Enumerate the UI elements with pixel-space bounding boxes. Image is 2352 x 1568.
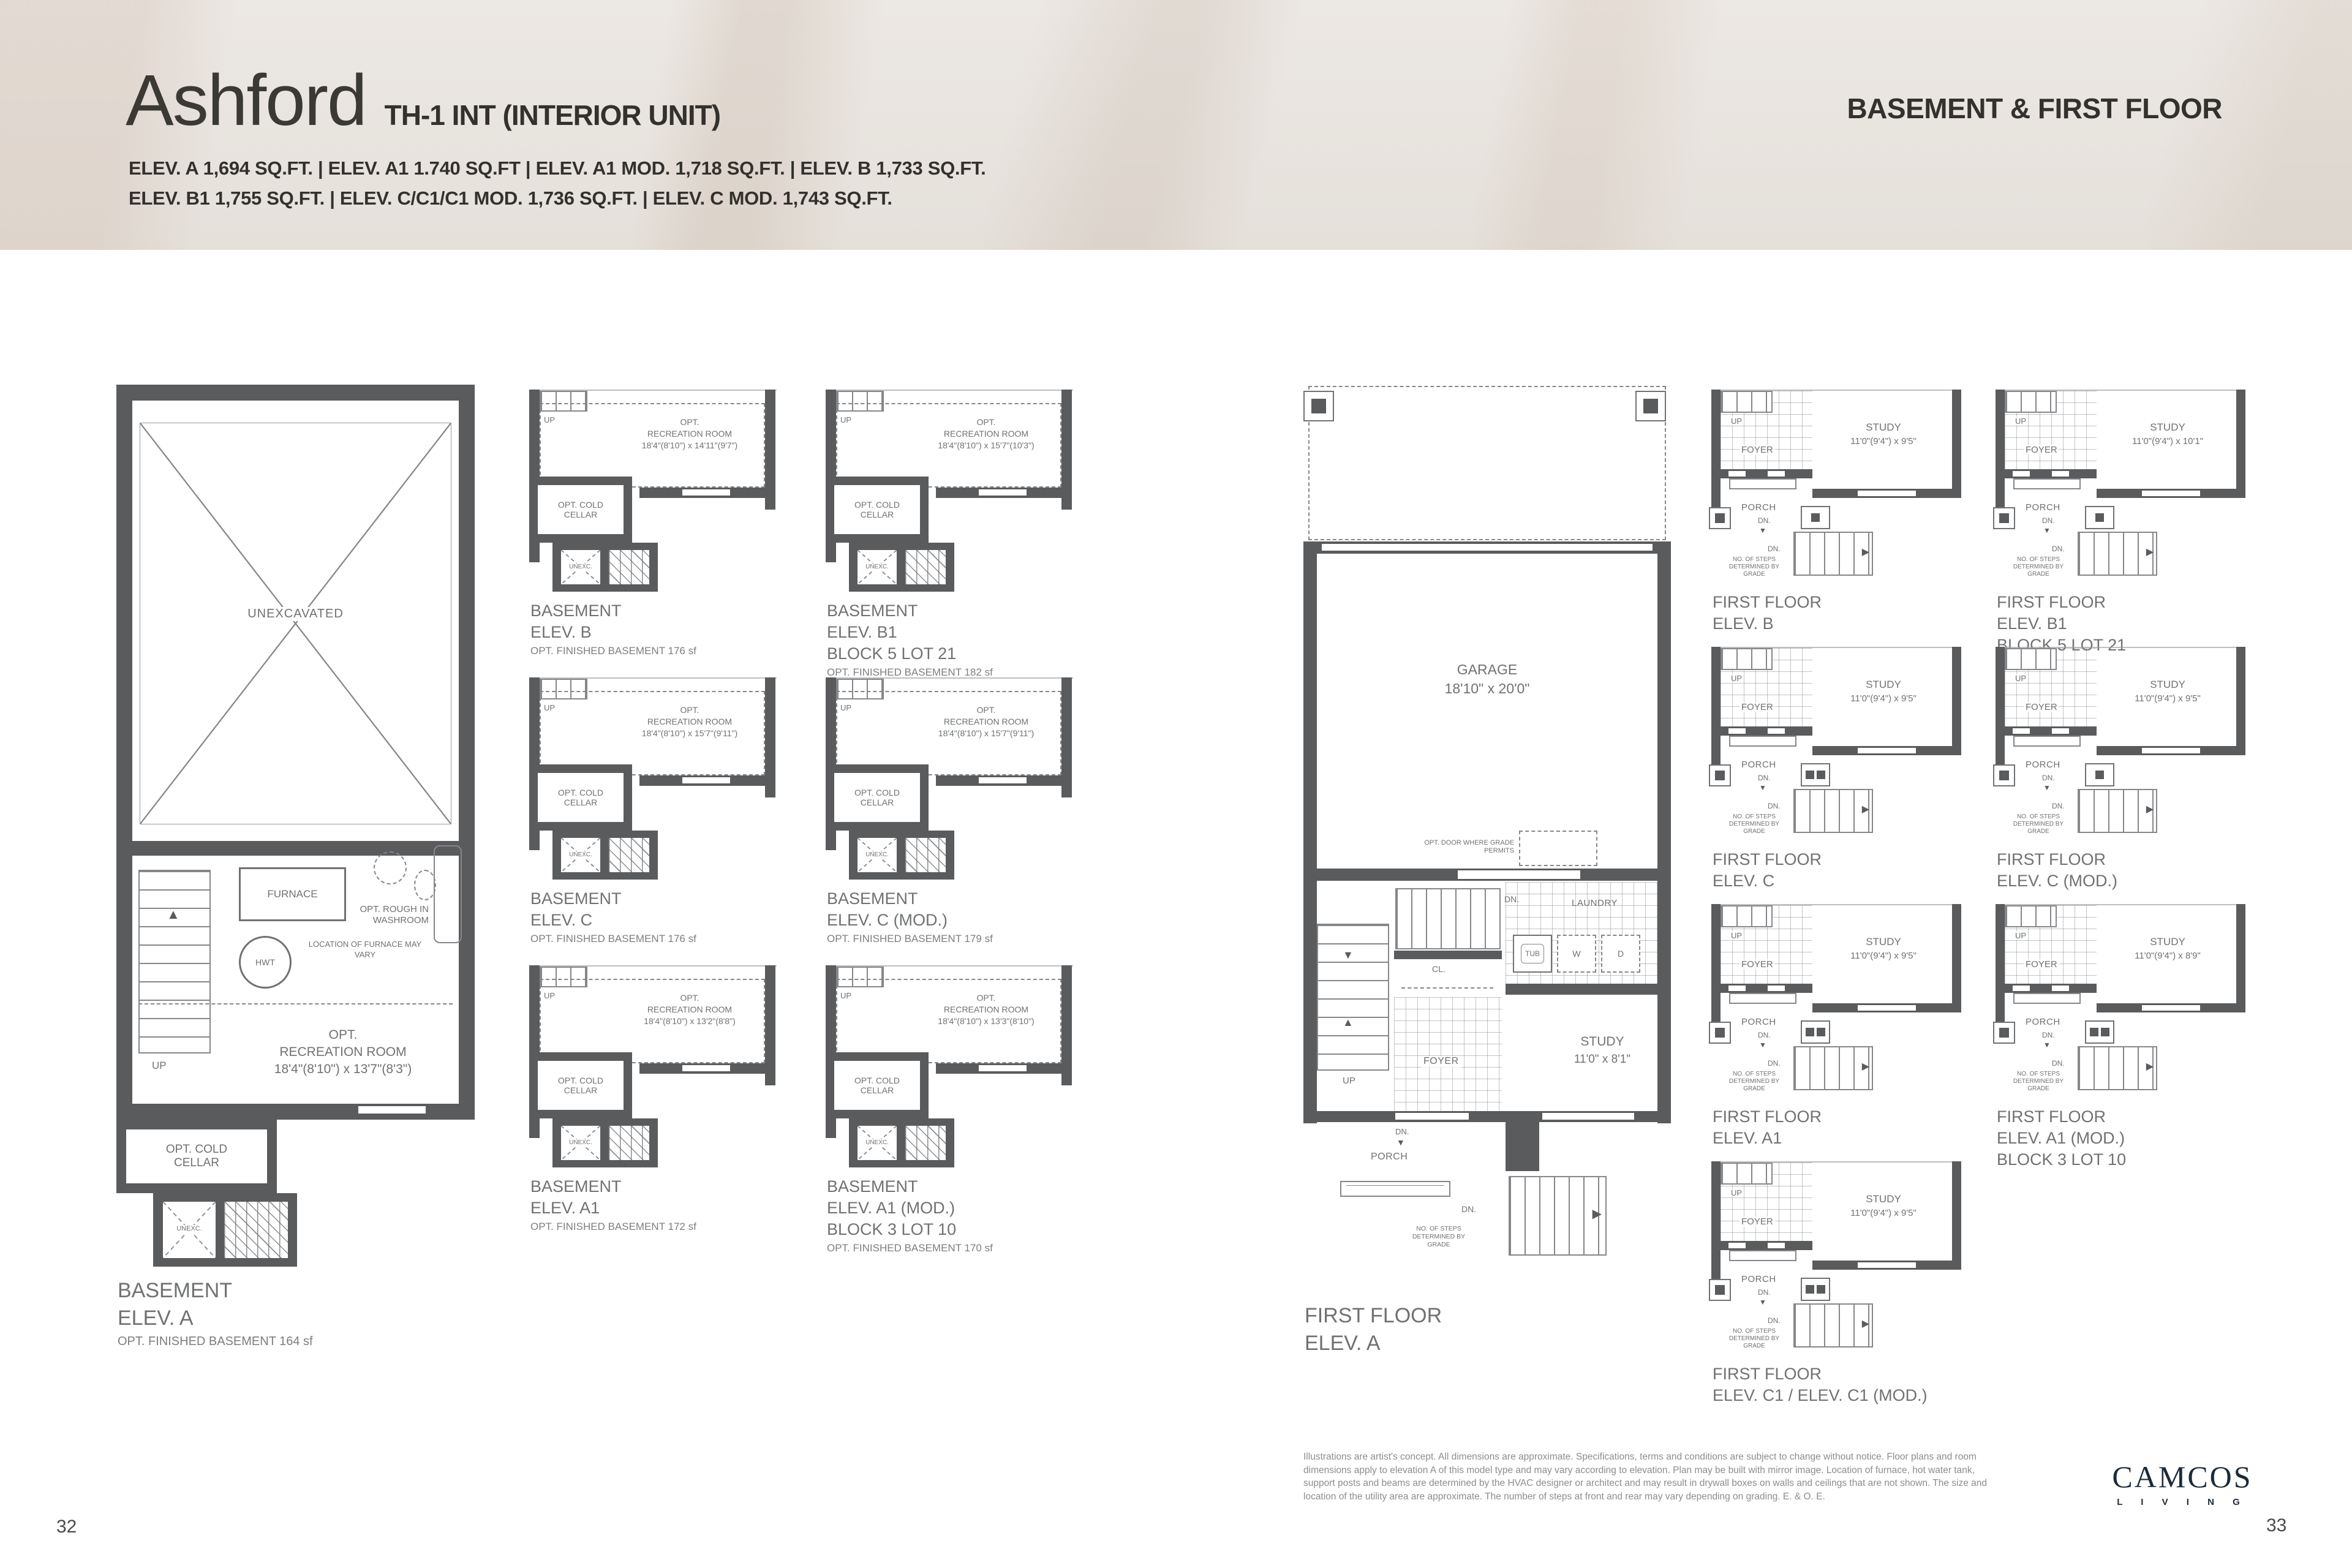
- study-dims: 11'0"(9'4") x 8'9": [2101, 949, 2234, 963]
- caption: FIRST FLOOR ELEV. C1 / ELEV. C1 (MOD.): [1713, 1363, 1928, 1406]
- wall: [1996, 647, 2005, 780]
- cold-cellar-label: OPT. COLD CELLAR: [850, 1076, 905, 1095]
- caption: BASEMENT ELEV. C OPT. FINISHED BASEMENT …: [530, 888, 696, 946]
- stair-arrow-icon: ▶: [2146, 548, 2154, 557]
- caption-elev: ELEV. C: [1713, 870, 1822, 892]
- post-core: [1715, 513, 1725, 523]
- cold-cellar-room: OPT. COLD CELLAR: [538, 773, 624, 822]
- post-core: [1999, 513, 2009, 523]
- rec-room-dims: 18'4"(8'10") x 15'7"(9'11"): [914, 728, 1058, 739]
- caption: FIRST FLOOR ELEV. A1: [1713, 1106, 1822, 1149]
- caption-floor: FIRST FLOOR: [1713, 849, 1822, 870]
- unexc-label: UNEXC.: [567, 851, 594, 859]
- window: [2052, 986, 2069, 991]
- caption-block: BLOCK 5 LOT 21: [827, 643, 993, 665]
- study-label: STUDY 11'0"(9'4") x 10'1": [2101, 420, 2234, 448]
- stairs-down: [1395, 888, 1501, 949]
- caption-elev: ELEV. C (MOD.): [1997, 870, 2117, 892]
- wall: [2236, 904, 2245, 1003]
- down-arrow-icon: ▼: [1759, 1298, 1766, 1306]
- wall: [1711, 904, 1721, 1038]
- foyer-label: FOYER: [2024, 445, 2059, 455]
- stair-hatch-cell: [609, 1126, 649, 1160]
- post-core: [1999, 1028, 2009, 1038]
- rec-room-name: RECREATION ROOM: [914, 1004, 1058, 1016]
- caption-floor: FIRST FLOOR: [1997, 592, 2126, 613]
- stairs-up: ▼ ▲: [1317, 924, 1389, 1071]
- porch-post: [1993, 507, 2015, 529]
- dn-label: DN.: [1758, 1289, 1771, 1297]
- window: [1858, 1262, 1916, 1268]
- post-core: [1811, 513, 1820, 522]
- study-label: STUDY 11'0"(9'4") x 9'5": [1817, 935, 1950, 963]
- toilet-fixture: [414, 870, 436, 900]
- study-label: STUDY 11'0" x 8'1": [1541, 1033, 1664, 1068]
- cold-cellar-room: OPT. COLD CELLAR: [834, 485, 920, 534]
- window: [1542, 1113, 1634, 1120]
- steps-note: NO. OF STEPS DETERMINED BY GRADE: [2005, 1071, 2071, 1093]
- post-core: [1715, 771, 1725, 780]
- rec-room-label: OPT. RECREATION ROOM 18'4"(8'10") x 13'7…: [233, 1027, 453, 1078]
- study-name: STUDY: [1817, 935, 1950, 949]
- up-label: UP: [2014, 931, 2027, 940]
- window: [1858, 748, 1916, 753]
- page-number-right: 33: [2266, 1515, 2286, 1536]
- sink-fixture: [374, 851, 407, 884]
- unexc-cell: UNEXC.: [561, 1126, 600, 1160]
- dn-label: DN.: [1768, 1060, 1781, 1068]
- basement-a-caption: BASEMENT ELEV. A OPT. FINISHED BASEMENT …: [118, 1277, 313, 1351]
- dn-label: DN.: [2052, 1060, 2065, 1068]
- window: [1768, 1243, 1785, 1248]
- post-core: [2101, 1028, 2109, 1036]
- washer-box: W: [1557, 935, 1596, 973]
- caption-sf: OPT. FINISHED BASEMENT 176 sf: [530, 643, 696, 658]
- door-opening: [1458, 870, 1580, 879]
- model-code: TH-1 INT (INTERIOR UNIT): [385, 99, 720, 132]
- window: [1858, 491, 1916, 496]
- porch-post: [1709, 1279, 1731, 1301]
- stair-arrow-icon: ▶: [2146, 1062, 2154, 1072]
- porch-steps: [2013, 736, 2081, 747]
- dn-label: DN.: [1768, 545, 1781, 554]
- hwt-label: HWT: [255, 957, 275, 967]
- stairs: [1721, 648, 1773, 670]
- caption-floor: BASEMENT: [827, 600, 993, 622]
- window: [2052, 728, 2069, 734]
- stair-arrow-icon: ▲: [1343, 1017, 1354, 1028]
- wall: [1996, 726, 2097, 736]
- foyer-floor: [1394, 997, 1502, 1111]
- rec-room-label: OPT. RECREATION ROOM 18'4"(8'10") x 13'3…: [914, 992, 1058, 1027]
- caption-elev: ELEV. B1: [1997, 613, 2126, 635]
- rec-room-name: RECREATION ROOM: [617, 716, 762, 728]
- rec-room-dims: 18'4"(8'10") x 15'7"(9'11"): [617, 728, 762, 739]
- wall: [1711, 984, 1812, 993]
- unexcavated-area: UNEXCAVATED: [140, 423, 451, 824]
- caption-elev: ELEV. A: [1305, 1330, 1442, 1357]
- stair-arrow-icon: ▼: [1343, 949, 1354, 960]
- cold-cellar-label: OPT. COLD CELLAR: [553, 788, 608, 807]
- rec-room-label: OPT. RECREATION ROOM 18'4"(8'10") x 15'7…: [617, 704, 762, 739]
- study-name: STUDY: [1817, 1192, 1950, 1206]
- cold-cellar-label: OPT. COLD CELLAR: [850, 788, 905, 807]
- porch-label: PORCH: [2026, 1017, 2060, 1027]
- porch-post: [2085, 763, 2114, 786]
- opt-label: OPT.: [914, 992, 1058, 1004]
- stair-hatch-cell: [905, 838, 946, 872]
- steps-note: NO. OF STEPS DETERMINED BY GRADE: [1721, 813, 1787, 835]
- first-floor-plan-elev-a: GARAGE 18'10" x 20'0" OPT. DOOR WHERE GR…: [1303, 385, 1671, 1285]
- caption-floor: FIRST FLOOR: [1997, 849, 2117, 870]
- rec-room-name: RECREATION ROOM: [233, 1044, 453, 1061]
- window: [2013, 728, 2030, 734]
- caption: FIRST FLOOR ELEV. B: [1713, 592, 1822, 635]
- porch-post: [2085, 1020, 2114, 1044]
- stairs: [2005, 391, 2057, 413]
- caption-floor: FIRST FLOOR: [1713, 592, 1822, 613]
- wall: [132, 841, 459, 856]
- study-dims: 11'0"(9'4") x 10'1": [2101, 434, 2234, 448]
- laundry-label: LAUNDRY: [1572, 898, 1618, 908]
- caption-floor: BASEMENT: [530, 600, 696, 622]
- rec-room-dims: 18'4"(8'10") x 13'3"(8'10"): [914, 1016, 1058, 1027]
- rec-room-label: OPT. RECREATION ROOM 18'4"(8'10") x 14'1…: [617, 417, 762, 451]
- wall: [1506, 984, 1657, 995]
- porch-post: [1801, 506, 1830, 529]
- wall: [2236, 390, 2245, 489]
- cold-cellar-label: OPT. COLD CELLAR: [850, 500, 905, 519]
- exterior-stairs: ▶: [2078, 1046, 2157, 1090]
- wall: [1952, 1161, 1961, 1261]
- opt-label: OPT.: [617, 992, 762, 1004]
- unexc-label: UNEXC.: [864, 1139, 891, 1147]
- window: [979, 489, 1027, 496]
- caption: FIRST FLOOR ELEV. A1 (MOD.) BLOCK 3 LOT …: [1997, 1106, 2126, 1170]
- post-core: [1643, 399, 1658, 413]
- study-dims: 11'0"(9'4") x 9'5": [1817, 1206, 1950, 1220]
- porch-post: [1993, 764, 2015, 786]
- caption-floor: FIRST FLOOR: [1713, 1363, 1928, 1385]
- stairs: [2005, 905, 2057, 927]
- window: [1768, 728, 1785, 734]
- window: [2052, 471, 2069, 477]
- dn-label: DN.: [1758, 517, 1771, 526]
- wall: [1711, 647, 1721, 780]
- study-label: STUDY 11'0"(9'4") x 8'9": [2101, 935, 2234, 963]
- camcos-logo: CAMCOS L I V I N G: [2081, 1459, 2283, 1507]
- opt-label: OPT.: [233, 1027, 453, 1044]
- stair-hatch-cell: [609, 550, 649, 584]
- opt-door-boundary: [1519, 831, 1597, 866]
- tub-label: TUB: [1521, 944, 1544, 963]
- study-name: STUDY: [1817, 677, 1950, 692]
- steps-note: NO. OF STEPS DETERMINED BY GRADE: [2005, 813, 2071, 835]
- post-core: [2090, 1028, 2098, 1036]
- wall: [1506, 1122, 1539, 1171]
- wall: [1996, 904, 2005, 1038]
- caption-sf: OPT. FINISHED BASEMENT 172 sf: [530, 1219, 696, 1234]
- up-label: UP: [1730, 1188, 1743, 1197]
- window: [2013, 986, 2030, 991]
- window: [1728, 1243, 1746, 1248]
- brochure-page: Ashford TH-1 INT (INTERIOR UNIT) BASEMEN…: [0, 0, 2352, 1568]
- unexc-cell: UNEXC.: [858, 1126, 897, 1160]
- caption-floor: BASEMENT: [827, 888, 993, 910]
- up-label: UP: [2014, 417, 2027, 426]
- rec-room-dims: 18'4"(8'10") x 14'11"(9'7"): [617, 440, 762, 451]
- window: [2142, 491, 2200, 496]
- unexc-label: UNEXC.: [567, 563, 594, 571]
- step-line: [1346, 1185, 1444, 1186]
- garage-label: GARAGE 18'10" x 20'0": [1395, 660, 1579, 698]
- porch-label: PORCH: [1741, 1017, 1776, 1027]
- dn-label: DN.: [2042, 1031, 2055, 1040]
- porch-post: [1709, 1022, 1731, 1044]
- exterior-stairs: ▶: [2078, 532, 2157, 576]
- porch-post: [1993, 1022, 2015, 1044]
- wall: [1952, 647, 1961, 746]
- porch-steps: [1340, 1181, 1450, 1197]
- foyer-label: FOYER: [1421, 1056, 1461, 1068]
- study-name: STUDY: [2101, 420, 2234, 434]
- caption-elev: ELEV. C (MOD.): [827, 910, 993, 931]
- basement-plan-elev-a: UNEXCAVATED ▲ UP FURNACE HWT LOCATION OF…: [116, 385, 475, 1279]
- stair-arrow-icon: ▶: [1862, 1319, 1869, 1329]
- sqft-specs: ELEV. A 1,694 SQ.FT. | ELEV. A1 1.740 SQ…: [129, 153, 986, 213]
- closet-dash: [1401, 987, 1493, 989]
- study-name: STUDY: [2101, 677, 2234, 692]
- porch-steps: [2013, 478, 2081, 489]
- stairs: [1721, 905, 1773, 927]
- caption: BASEMENT ELEV. A1 (MOD.) BLOCK 3 LOT 10 …: [827, 1176, 993, 1256]
- up-label: UP: [1730, 417, 1743, 426]
- post-core: [1806, 1028, 1814, 1036]
- wall: [1711, 726, 1812, 736]
- dn-label: DN.: [2042, 774, 2055, 783]
- caption-floor: FIRST FLOOR: [1305, 1302, 1442, 1330]
- unexc-cell: UNEXC.: [858, 550, 897, 584]
- wall: [1996, 390, 2005, 523]
- porch-label: PORCH: [1371, 1151, 1408, 1163]
- porch-post: [1709, 507, 1731, 529]
- up-label: UP: [2014, 674, 2027, 683]
- down-arrow-icon: ▼: [1759, 784, 1766, 791]
- opt-label: OPT.: [617, 417, 762, 428]
- exterior-stairs: ▶: [1793, 532, 1873, 576]
- garage-dims: 18'10" x 20'0": [1395, 679, 1579, 698]
- post-core: [1715, 1028, 1725, 1038]
- stair-hatch-cell: [905, 550, 946, 584]
- washroom-note: OPT. ROUGH IN WASHROOM: [330, 904, 429, 926]
- post-core: [1817, 771, 1825, 779]
- window: [1858, 1005, 1916, 1011]
- caption-floor: BASEMENT: [118, 1277, 313, 1305]
- driveway-boundary: [1308, 386, 1666, 540]
- up-label: UP: [1730, 931, 1743, 940]
- exterior-stairs: ▶: [1793, 789, 1873, 833]
- caption-elev: ELEV. C: [530, 910, 696, 931]
- post-core: [1715, 1285, 1725, 1295]
- stair-hatch-cell: [224, 1202, 288, 1258]
- stair-arrow-icon: ▲: [167, 908, 180, 921]
- title-row: Ashford TH-1 INT (INTERIOR UNIT): [126, 59, 720, 142]
- dn-label: DN.: [2052, 802, 2065, 811]
- caption-elev: ELEV. A1: [530, 1197, 696, 1219]
- porch-label: PORCH: [1741, 1274, 1776, 1284]
- porch-post: [1635, 391, 1666, 421]
- porch-post: [1303, 391, 1334, 421]
- porch-steps: [2013, 993, 2081, 1004]
- closet-label: CL.: [1432, 964, 1445, 974]
- caption-floor: BASEMENT: [530, 1176, 696, 1197]
- washer-label: W: [1572, 949, 1580, 959]
- foyer-label: FOYER: [1740, 1216, 1775, 1227]
- window: [1728, 986, 1746, 991]
- caption-sf: OPT. FINISHED BASEMENT 179 sf: [827, 931, 993, 946]
- porch-label: PORCH: [1741, 759, 1776, 770]
- dn-label: DN.: [1758, 1031, 1771, 1040]
- down-arrow-icon: ▼: [1759, 1041, 1766, 1049]
- furnace-label: FURNACE: [267, 888, 317, 900]
- caption: BASEMENT ELEV. B1 BLOCK 5 LOT 21 OPT. FI…: [827, 600, 993, 680]
- study-dims: 11'0" x 8'1": [1541, 1050, 1664, 1068]
- wall: [1952, 390, 1961, 489]
- window: [682, 1065, 730, 1071]
- unexc-label: UNEXC.: [864, 851, 891, 859]
- door-opening: [1395, 1113, 1469, 1120]
- unexc-cell: UNEXC.: [858, 838, 897, 872]
- cold-cellar-room: OPT. COLD CELLAR: [538, 1061, 624, 1110]
- down-arrow-icon: ▼: [2043, 1041, 2051, 1049]
- post-core: [1817, 1285, 1825, 1294]
- cold-cellar-room: OPT. COLD CELLAR: [834, 773, 920, 822]
- rec-room-dims: 18'4"(8'10") x 13'2"(8'8"): [617, 1016, 762, 1027]
- foyer-label: FOYER: [2024, 959, 2059, 970]
- caption-floor: BASEMENT: [827, 1176, 993, 1197]
- stair-arrow-icon: ▶: [1593, 1208, 1602, 1220]
- down-arrow-icon: ▼: [1759, 527, 1766, 534]
- opt-door-note: OPT. DOOR WHERE GRADE PERMITS: [1417, 839, 1514, 855]
- first-floor-a-caption: FIRST FLOOR ELEV. A: [1305, 1302, 1442, 1357]
- cold-cellar-room: OPT. COLD CELLAR: [538, 485, 624, 534]
- dn-label: DN.: [1768, 1317, 1781, 1325]
- unexc-cell: UNEXC.: [561, 550, 600, 584]
- post-core: [1311, 399, 1326, 413]
- caption-sf: OPT. FINISHED BASEMENT 164 sf: [118, 1332, 313, 1351]
- rec-room-name: RECREATION ROOM: [617, 428, 762, 440]
- rec-room-label: OPT. RECREATION ROOM 18'4"(8'10") x 13'2…: [617, 992, 762, 1027]
- porch-post: [2085, 506, 2114, 529]
- rec-room-name: RECREATION ROOM: [914, 428, 1058, 440]
- study-label: STUDY 11'0"(9'4") x 9'5": [1817, 677, 1950, 706]
- caption-elev: ELEV. C1 / ELEV. C1 (MOD.): [1713, 1385, 1928, 1406]
- caption-elev: ELEV. B: [1713, 613, 1822, 635]
- opt-label: OPT.: [617, 704, 762, 716]
- caption-elev: ELEV. B1: [827, 622, 993, 643]
- down-arrow-icon: ▼: [1396, 1138, 1405, 1147]
- porch-post: [1801, 763, 1830, 786]
- wall: [1996, 984, 2097, 993]
- study-label: STUDY 11'0"(9'4") x 9'5": [1817, 1192, 1950, 1220]
- caption-elev: ELEV. B: [530, 622, 696, 643]
- stair-arrow-icon: ▶: [2146, 805, 2154, 815]
- wall: [1394, 951, 1502, 959]
- sqft-specs-line2: ELEV. B1 1,755 SQ.FT. | ELEV. C/C1/C1 MO…: [129, 183, 986, 213]
- steps-note: NO. OF STEPS DETERMINED BY GRADE: [1403, 1225, 1475, 1249]
- window: [979, 1065, 1027, 1071]
- foyer-label: FOYER: [1740, 702, 1775, 712]
- unexc-cell: UNEXC.: [163, 1202, 216, 1258]
- page-number-left: 32: [56, 1517, 77, 1537]
- foyer-label: FOYER: [1740, 445, 1775, 455]
- stairs: [1721, 1163, 1773, 1185]
- post-core: [1999, 771, 2009, 780]
- exterior-stairs: ▶: [2078, 789, 2157, 833]
- window: [1728, 728, 1746, 734]
- stair-arrow-icon: ▶: [1862, 805, 1869, 815]
- porch-steps: [1729, 478, 1796, 489]
- window: [1728, 471, 1746, 477]
- porch-post: [1801, 1020, 1830, 1044]
- wall: [1303, 541, 1317, 1123]
- study-dims: 11'0"(9'4") x 9'5": [1817, 949, 1950, 963]
- dryer-box: D: [1601, 935, 1640, 973]
- unexc-label: UNEXC.: [172, 1225, 206, 1233]
- wall: [1711, 469, 1812, 478]
- disclaimer-text: Illustrations are artist's concept. All …: [1303, 1450, 1992, 1503]
- dn-label: DN.: [2042, 517, 2055, 526]
- porch-post: [1709, 764, 1731, 786]
- dn-label: DN.: [1395, 1127, 1409, 1136]
- up-label: UP: [1343, 1076, 1355, 1086]
- window: [358, 1106, 426, 1114]
- porch-post: [1801, 1278, 1830, 1301]
- dn-label: DN.: [1758, 774, 1771, 783]
- caption-block: BLOCK 3 LOT 10: [1997, 1149, 2126, 1170]
- steps-note: NO. OF STEPS DETERMINED BY GRADE: [1721, 556, 1787, 578]
- porch-label: PORCH: [1741, 502, 1776, 513]
- exterior-stairs: ▶: [1793, 1046, 1873, 1090]
- rec-room-label: OPT. RECREATION ROOM 18'4"(8'10") x 15'7…: [914, 417, 1058, 451]
- cold-cellar-label: OPT. COLD CELLAR: [553, 1076, 608, 1095]
- rec-room-dims: 18'4"(8'10") x 13'7"(8'3"): [233, 1061, 453, 1078]
- furnace-note: LOCATION OF FURNACE MAY VARY: [301, 939, 429, 960]
- exterior-stairs: ▶: [1793, 1303, 1873, 1347]
- rec-room-name: RECREATION ROOM: [617, 1004, 762, 1016]
- wall: [1711, 1161, 1721, 1295]
- rec-room-label: OPT. RECREATION ROOM 18'4"(8'10") x 15'7…: [914, 704, 1058, 739]
- logo-tagline: L I V I N G: [2081, 1497, 2283, 1507]
- post-core: [1817, 1028, 1825, 1036]
- laundry-tub: TUB: [1513, 935, 1552, 973]
- caption: FIRST FLOOR ELEV. C (MOD.): [1997, 849, 2117, 892]
- section-title: BASEMENT & FIRST FLOOR: [1847, 92, 2222, 125]
- logo-wordmark: CAMCOS: [2081, 1459, 2283, 1494]
- dryer-label: D: [1618, 949, 1624, 959]
- cold-cellar-room: OPT. COLD CELLAR: [834, 1061, 920, 1110]
- study-name: STUDY: [2101, 935, 2234, 949]
- caption-floor: FIRST FLOOR: [1997, 1106, 2126, 1128]
- exterior-stairs: ▶: [1509, 1176, 1607, 1256]
- caption: BASEMENT ELEV. B OPT. FINISHED BASEMENT …: [530, 600, 696, 658]
- stair-arrow-icon: ▶: [1862, 1062, 1869, 1072]
- caption: BASEMENT ELEV. A1 OPT. FINISHED BASEMENT…: [530, 1176, 696, 1234]
- window: [682, 489, 730, 496]
- window: [682, 777, 730, 783]
- caption-elev: ELEV. A1 (MOD.): [827, 1197, 993, 1219]
- steps-note: NO. OF STEPS DETERMINED BY GRADE: [1721, 1328, 1787, 1350]
